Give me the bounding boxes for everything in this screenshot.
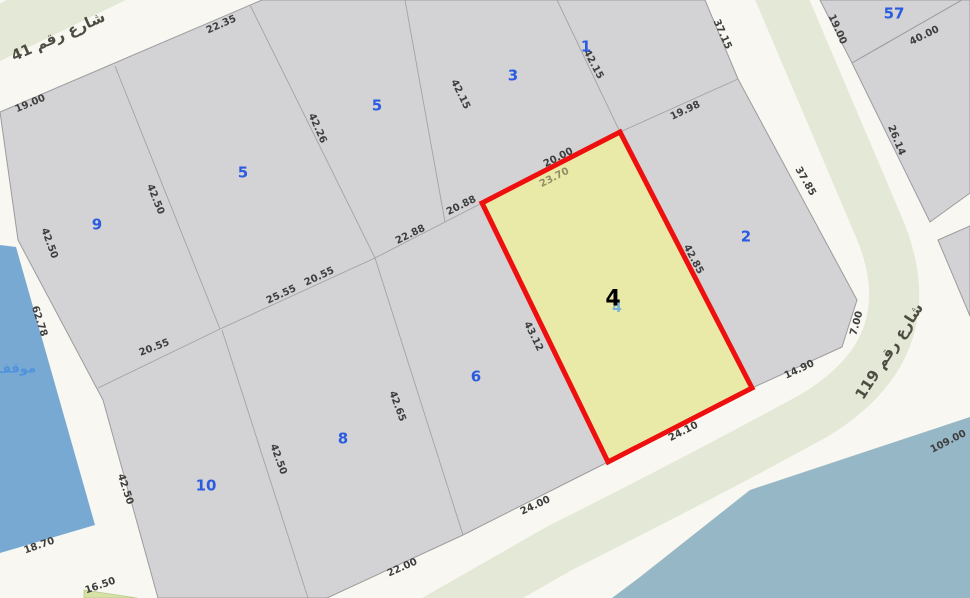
parking-label: موقف [0,362,36,377]
parcel-number-label: 57 [884,4,905,22]
parcel-number-label: 5 [238,163,248,181]
parcel-number-label: 8 [338,429,348,447]
parcel-number-label: 2 [741,227,751,245]
parcel-number-label: 9 [92,215,102,233]
parcel-number-label: 1 [581,37,591,55]
parcel-number-label: 10 [196,476,217,494]
parcel-number-label: 4 [605,287,620,312]
map-viewport[interactable]: 19.0022.3542.5042.2642.1542.1537.1519.00… [0,0,970,598]
parcel-number-label: 6 [471,367,481,385]
parcel-number-label: 3 [508,66,518,84]
parcel-number-label: 5 [372,96,382,114]
map-canvas[interactable]: 19.0022.3542.5042.2642.1542.1537.1519.00… [0,0,970,598]
